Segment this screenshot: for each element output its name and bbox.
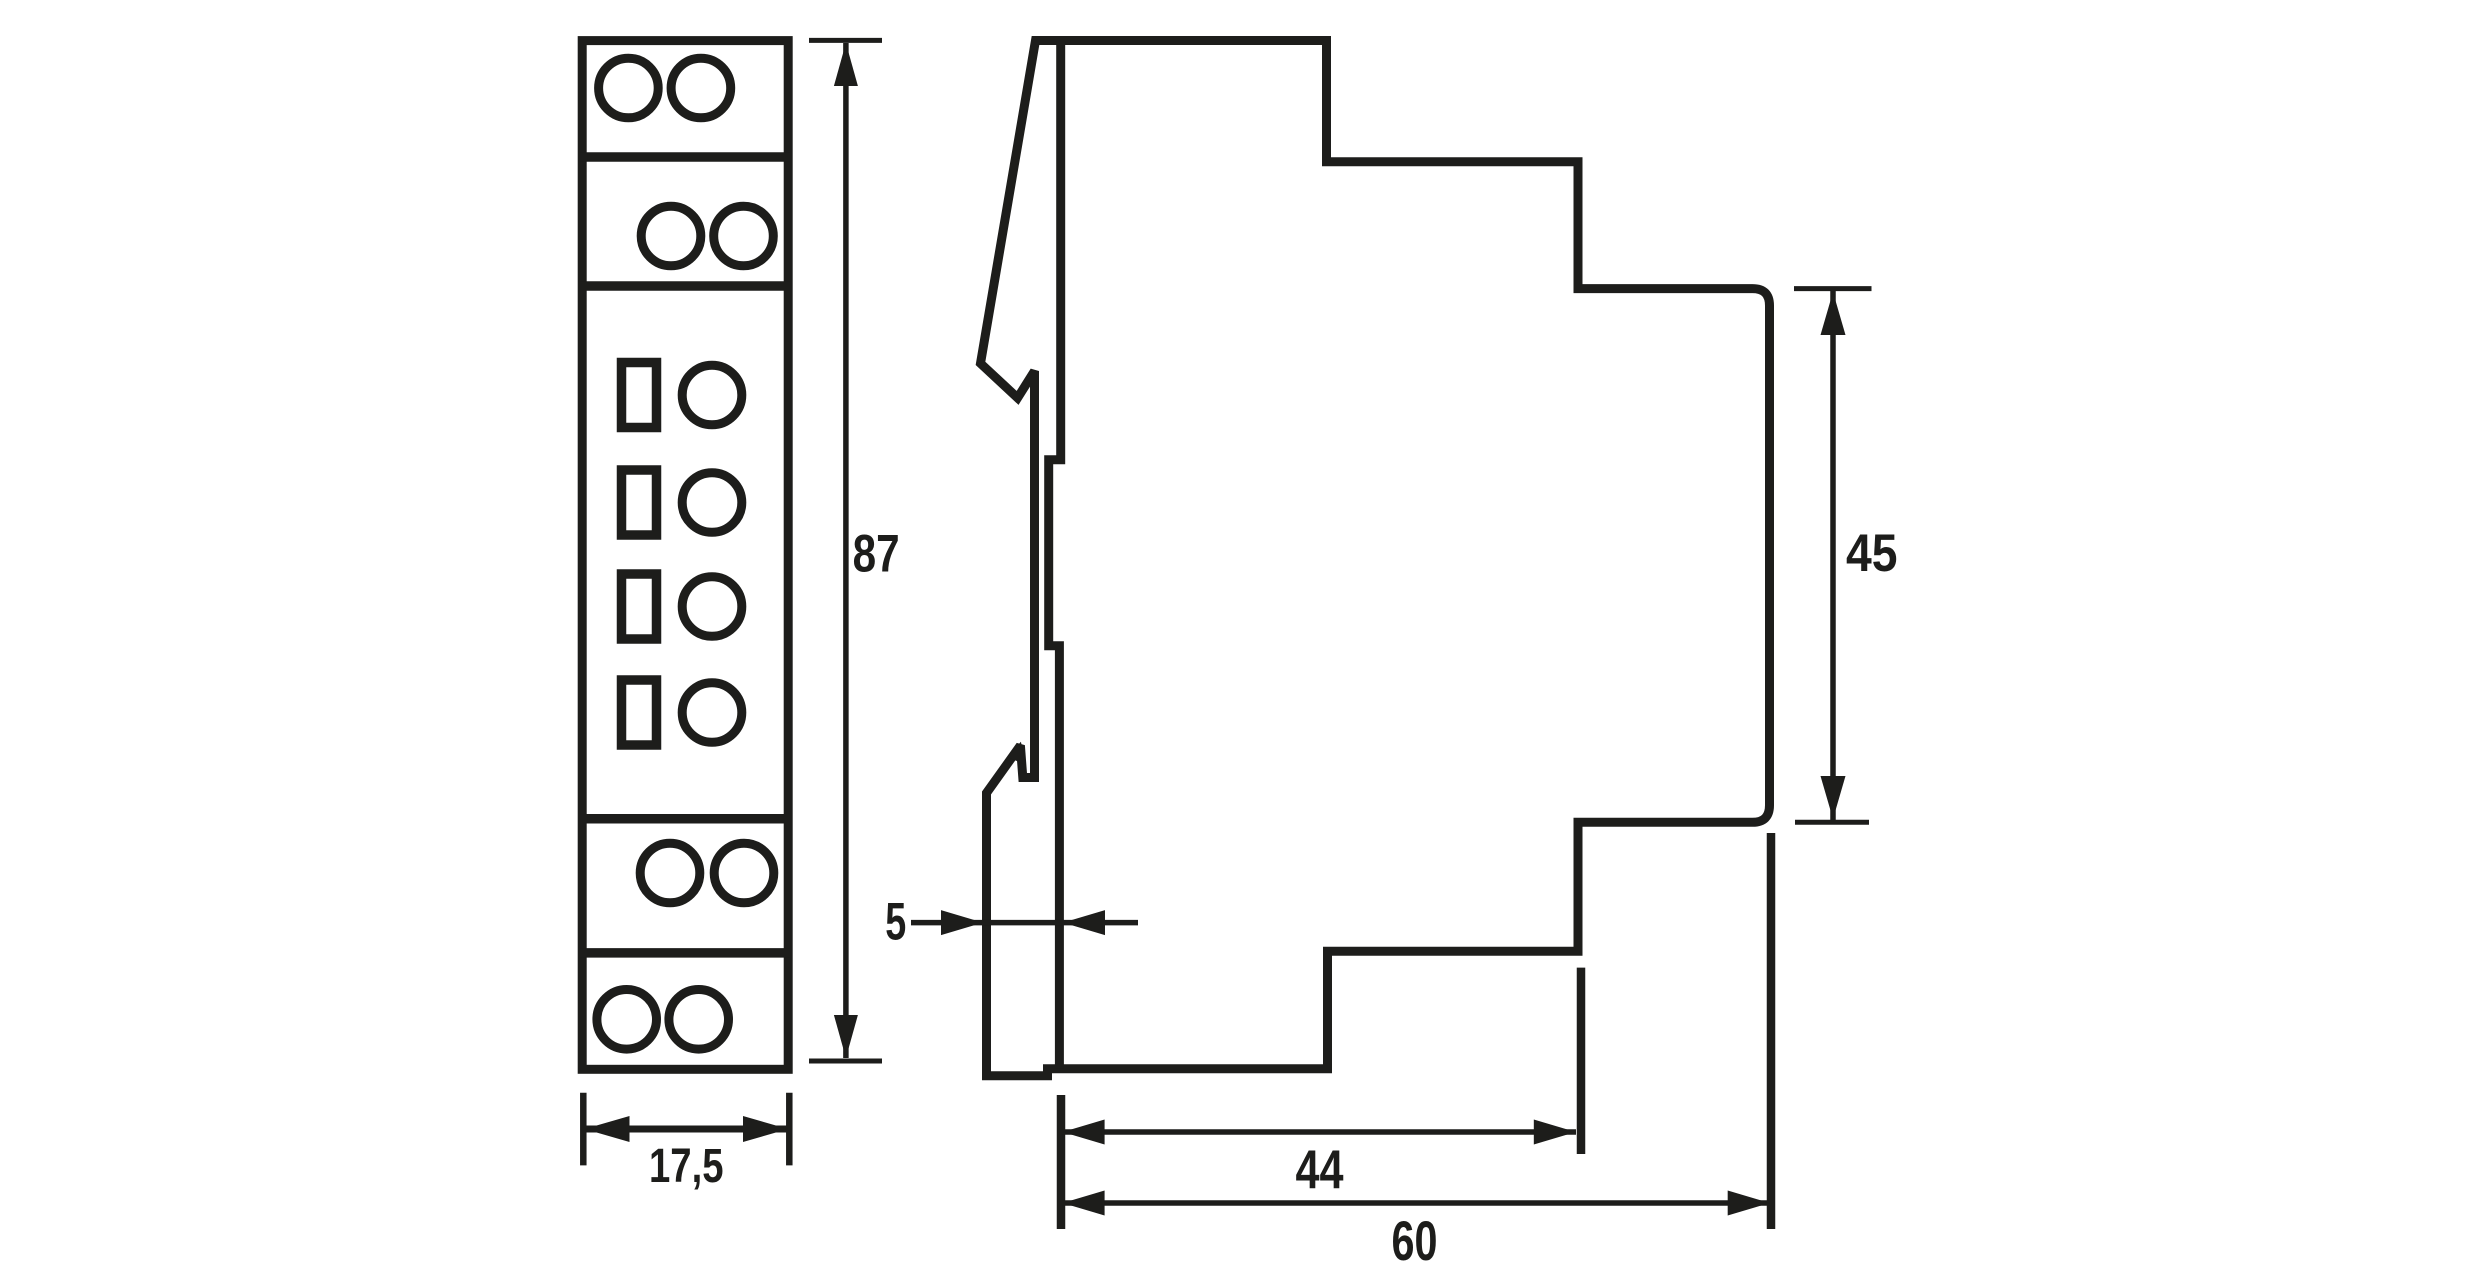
svg-text:60: 60 xyxy=(1392,1209,1438,1271)
svg-text:45: 45 xyxy=(1846,524,1898,583)
svg-text:44: 44 xyxy=(1296,1138,1344,1200)
svg-text:87: 87 xyxy=(853,525,900,584)
svg-text:17,5: 17,5 xyxy=(649,1140,724,1193)
svg-text:5: 5 xyxy=(885,893,906,952)
